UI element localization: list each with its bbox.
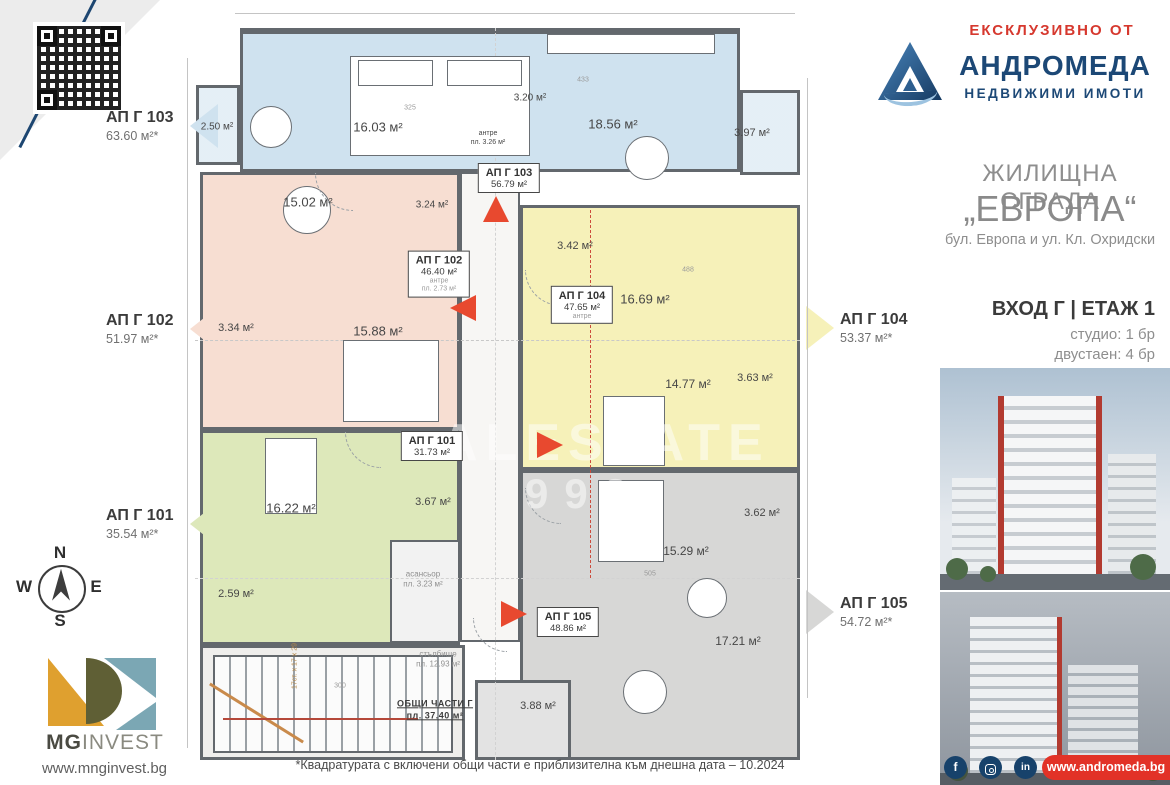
stair-arrow-line [223, 718, 418, 720]
room-area-label-r101-bath: 3.67 м² [415, 495, 451, 509]
facebook-icon[interactable]: f [944, 756, 967, 779]
building-address: бул. Европа и ул. Кл. Охридски [930, 232, 1170, 248]
entrance-arrow-up-icon [483, 196, 509, 222]
apartment-total-area: 63.60 м²* [106, 129, 184, 143]
room-area-label-r105-bedroom: 15.29 м² [663, 544, 709, 560]
unit-id: АП Г 105 [545, 611, 591, 623]
room-area-label-stair-note: 17ст. х 17 х 29 [290, 643, 299, 689]
render-tree [946, 558, 968, 580]
room-area-label-r104-bedroom: 14.77 м² [665, 377, 711, 393]
room-area-label-stairs: стълбище пл. 12.93 м² [416, 650, 460, 671]
furniture-kitchen-counter [547, 34, 715, 54]
unit-label-box-u101: АП Г 10131.73 м² [401, 431, 463, 461]
apartment-arrow-icon [806, 590, 834, 634]
unit-extra: пл. 2.73 м² [416, 286, 462, 294]
unit-id: АП Г 102 [416, 255, 462, 267]
region-corridor [460, 172, 520, 642]
dimension-line [187, 58, 188, 748]
andromeda-swoosh [884, 90, 939, 108]
furniture-bed [598, 480, 664, 562]
dimension-number: 505 [644, 571, 656, 578]
dimension-number: 488 [682, 267, 694, 274]
apartment-total-area: 54.72 м²* [840, 615, 908, 629]
apartment-id: АП Г 105 [840, 595, 908, 613]
apartment-arrow-icon [806, 306, 834, 350]
dimension-line [807, 78, 808, 698]
room-area-label-r105-living: 17.21 м² [715, 634, 761, 650]
compass-north-label: N [54, 543, 66, 563]
unit-mix-two-room: двустаен: 4 бр [930, 346, 1155, 363]
apartment-id: АП Г 103 [106, 109, 184, 127]
room-area-label-r105-balcony: 3.62 м² [744, 506, 780, 520]
floor-plan-poster: N W E S MGINVEST www.mnginvest.bg [0, 0, 1170, 785]
entrance-floor-label: ВХОД Г | ЕТАЖ 1 [930, 298, 1155, 321]
section-line [590, 210, 591, 578]
compass-south-label: S [54, 611, 65, 631]
room-area-label-r104-living: 16.69 м² [620, 292, 669, 309]
furniture-bed [343, 340, 439, 422]
apartment-total-area: 35.54 м²* [106, 527, 184, 541]
compass-west-label: W [16, 577, 32, 597]
entrance-arrow-left-icon [450, 295, 476, 321]
unit-id: АП Г 101 [409, 435, 455, 447]
unit-extra: антре [416, 278, 462, 286]
apartment-callout-АП-Г-105: АП Г 10554.72 м²* [806, 590, 908, 634]
furniture-table [625, 136, 669, 180]
dimension-number: 325 [404, 105, 416, 112]
room-area-label-elevator: асансьор пл. 3.23 м² [403, 570, 442, 591]
andromeda-website-pill[interactable]: www.andromeda.bg [1042, 755, 1170, 780]
measure-line [195, 340, 800, 341]
apartment-id: АП Г 101 [106, 507, 184, 525]
unit-mix-studio: студио: 1 бр [930, 326, 1155, 343]
dimension-number: 300 [334, 683, 346, 690]
room-area-label-r102-bedroom: 15.88 м² [353, 324, 402, 341]
room-area-label-r104-balcony: 3.63 м² [737, 371, 773, 385]
exclusive-label: ЕКСКЛУЗИВНО ОТ [952, 22, 1152, 39]
unit-area: 48.86 м² [545, 623, 591, 634]
entrance-arrow-right-icon [537, 432, 563, 458]
render-building [998, 396, 1102, 574]
agency-name: АНДРОМЕДА [952, 50, 1158, 82]
mginvest-olive-shape [86, 658, 122, 724]
qr-code [33, 22, 125, 114]
apartment-arrow-icon [190, 307, 218, 351]
room-area-label-r104-bath: 3.42 м² [557, 239, 593, 253]
unit-label-box-u104: АП Г 10447.65 м²антре [551, 286, 613, 324]
room-area-label-common: ОБЩИ ЧАСТИ Г пл. 37.40 м² [397, 698, 473, 721]
room-area-label-r101-balcony: 2.59 м² [218, 587, 254, 601]
apartment-arrow-icon [190, 502, 218, 546]
apartment-total-area: 53.37 м²* [840, 331, 908, 345]
mginvest-wordmark: MGINVEST [30, 731, 180, 755]
disclaimer-text: *Квадратурата с включени общи части е пр… [240, 758, 840, 772]
linkedin-icon[interactable]: in [1014, 756, 1037, 779]
unit-extra: антре [559, 313, 605, 321]
mginvest-name-light: INVEST [82, 731, 164, 754]
compass-east-label: E [90, 577, 101, 597]
instagram-icon[interactable] [979, 756, 1002, 779]
apartment-id: АП Г 102 [106, 312, 184, 330]
region-apt-105-bath [475, 680, 571, 760]
apartment-callout-АП-Г-102: АП Г 10251.97 м²* [106, 307, 218, 351]
unit-label-box-u105: АП Г 10548.86 м² [537, 607, 599, 637]
mginvest-website[interactable]: www.mnginvest.bg [12, 760, 197, 777]
room-area-label-r103-balcony-left: 2.50 м² [201, 121, 233, 134]
apartment-callout-АП-Г-101: АП Г 10135.54 м²* [106, 502, 218, 546]
building-name: „ЕВРОПА“ [930, 188, 1170, 230]
render-tree [1130, 554, 1156, 580]
unit-area: 31.73 м² [409, 447, 455, 458]
furniture-table [687, 578, 727, 618]
unit-id: АП Г 104 [559, 290, 605, 302]
render-tree [980, 566, 996, 582]
unit-label-box-u103: АП Г 10356.79 м² [478, 163, 540, 193]
region-elevator [390, 540, 460, 643]
unit-area: 46.40 м² [416, 267, 462, 278]
mginvest-name-bold: MG [46, 731, 82, 754]
apartment-id: АП Г 104 [840, 311, 908, 329]
room-area-label-r102-bath: 3.24 м² [416, 199, 448, 212]
room-area-label-r105-bath: 3.88 м² [520, 699, 556, 713]
unit-area: 47.65 м² [559, 302, 605, 313]
room-area-label-r103-antre: антре пл. 3.26 м² [471, 129, 505, 147]
furniture-table [250, 106, 292, 148]
unit-label-box-u102: АП Г 10246.40 м²антрепл. 2.73 м² [408, 251, 470, 298]
furniture-pillow [358, 60, 433, 86]
room-area-label-r101-room: 16.22 м² [266, 501, 315, 518]
building-render-top [940, 368, 1170, 590]
dimension-number: 433 [577, 77, 589, 84]
room-area-label-r103-living: 18.56 м² [588, 117, 637, 134]
furniture-bed [603, 396, 665, 466]
unit-id: АП Г 103 [486, 167, 532, 179]
room-area-label-r103-bedroom: 16.03 м² [353, 120, 402, 137]
furniture-pillow [447, 60, 522, 86]
mginvest-teal-bottom-shape [116, 702, 156, 730]
unit-area: 56.79 м² [486, 179, 532, 190]
apartment-callout-АП-Г-104: АП Г 10453.37 м²* [806, 306, 908, 350]
apartment-total-area: 51.97 м²* [106, 332, 184, 346]
room-area-label-r102-living: 15.02 м² [283, 195, 332, 212]
floor-plan: ALESTATE 993 2.50 м²16.03 м²3.20 м²18.56… [195, 18, 835, 762]
agency-tagline: НЕДВИЖИМИ ИМОТИ [952, 86, 1158, 101]
entrance-arrow-right-icon [501, 601, 527, 627]
furniture-table [623, 670, 667, 714]
room-area-label-r103-balcony-right: 3.97 м² [734, 126, 770, 140]
dimension-line [235, 13, 795, 14]
room-area-label-r103-bath: 3.20 м² [514, 92, 546, 105]
room-area-label-r102-entry: 3.34 м² [218, 321, 254, 335]
